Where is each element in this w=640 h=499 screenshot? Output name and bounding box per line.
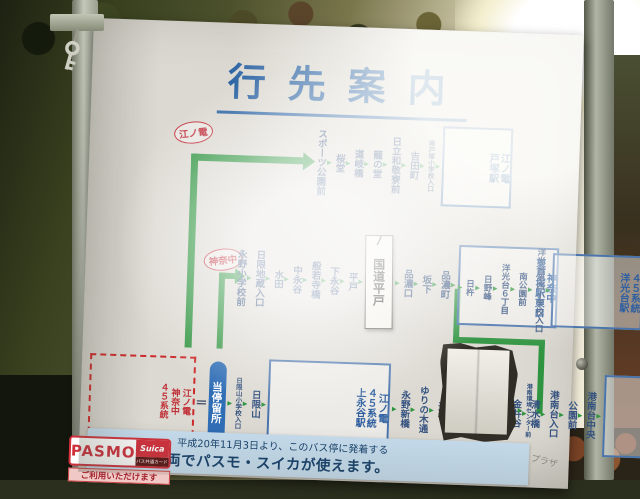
route-arrow-icon: ▶ xyxy=(392,405,397,412)
suica-badge: Suica バス共通カード xyxy=(135,440,169,467)
route-line-vertical-middle xyxy=(217,273,226,349)
route-arrow-icon: ▶ xyxy=(493,285,498,292)
bus-stop-label: ゆりの木通 xyxy=(416,386,428,434)
route-arrow-icon: ▶ xyxy=(432,280,437,287)
bus-stop-label: 平戸 xyxy=(346,271,357,290)
route-arrow-icon: ▶ xyxy=(247,274,252,281)
pasted-stop-label: 国道平戸 xyxy=(365,235,394,329)
terminal-box-totsuka: 江ノ電戸塚駅 xyxy=(441,126,514,208)
route-arrow-icon: ▶ xyxy=(475,284,480,291)
route-arrow-icon: ▶ xyxy=(265,275,270,282)
bus-stop-label: 南戸塚小学校入口 xyxy=(426,140,435,192)
pole-bolt xyxy=(576,358,588,370)
route-line-top-horizontal xyxy=(191,153,303,164)
pasmo-strip-text: ご利用いただけます xyxy=(68,467,170,485)
bus-stop-label: 下永谷 xyxy=(327,266,338,295)
bus-stop-label: 品濃口 xyxy=(401,269,412,298)
bus-stop-label: 水田 xyxy=(272,269,283,288)
bus-stop-label: 日立和敬寮前 xyxy=(388,136,400,193)
route-arrow-icon: ▶ xyxy=(458,283,463,290)
route-arrow-icon: ▶ xyxy=(541,410,546,417)
route-arrow-icon: ▶ xyxy=(435,163,440,170)
equals-sign: ＝ xyxy=(195,393,208,410)
route-arrowhead-top xyxy=(303,152,316,170)
terminal-label: ４５系統 xyxy=(157,382,167,418)
terminal-label: ４５系統 xyxy=(628,273,640,313)
route-arrow-icon: ▶ xyxy=(243,400,248,407)
route-arrow-icon: ▶ xyxy=(528,286,533,293)
bus-stop-label: 港南台入口 xyxy=(546,390,558,438)
terminal-box-konandai: ４５系統港南台駅 xyxy=(602,375,640,460)
route-arrow-icon: ▶ xyxy=(429,406,434,413)
pasmo-logo-box: PASMO Suica バス共通カード xyxy=(68,435,171,469)
suica-sub-label: バス共通カード xyxy=(135,457,169,467)
terminal-label: 戸塚駅 xyxy=(486,153,497,183)
route-arrow-icon: ▶ xyxy=(451,281,456,288)
bus-stop-label: 日限山 xyxy=(249,389,260,418)
terminal-label: ４５系統 xyxy=(364,388,376,428)
bus-stop-label: 公園前 xyxy=(565,400,576,429)
bus-stop-label: 永野小学校前 xyxy=(234,249,246,306)
bus-stop-label: 洋光台第四小学校入口 xyxy=(533,247,545,332)
route-arrow-icon: ▶ xyxy=(284,275,289,282)
terminal-label: 江ノ電 xyxy=(375,393,386,423)
route-line-middle-horizontal xyxy=(219,273,235,280)
route-arrow-icon: ▶ xyxy=(227,399,232,406)
route-arrow-icon: ▶ xyxy=(578,412,583,419)
route-arrow-icon: ▶ xyxy=(340,277,345,284)
bus-stop-label: 日限地蔵入口 xyxy=(253,249,265,306)
bus-stop-label: 桜堂 xyxy=(333,153,344,172)
route-arrow-icon: ▶ xyxy=(414,280,419,287)
route-arrow-icon: ▶ xyxy=(346,159,351,166)
terminal-label: 上永谷駅 xyxy=(353,387,365,427)
destination-sign-board: 行先案内 江ノ電 神奈中 スポーツ公園前▶桜堂▶道岐橋▶龍の堂▶日立和敬寮前▶吉… xyxy=(78,18,584,489)
torn-paper-surface xyxy=(445,349,510,435)
sign-title: 行先案内 xyxy=(217,50,469,122)
terminal-label: 江ノ電 xyxy=(180,388,190,415)
route-arrow-icon: ▶ xyxy=(321,277,326,284)
bus-stop-label: スポーツ公園前 xyxy=(314,129,326,196)
bus-stop-label: 日杵 xyxy=(464,279,474,296)
bus-stop-label: 洋光台６丁目 xyxy=(499,263,510,314)
terminal-box-yokodai: ４５系統洋光台駅 xyxy=(551,253,640,330)
route-arrow-icon: ▶ xyxy=(545,286,550,293)
terminal-label: 江ノ電 xyxy=(497,153,508,183)
bus-stop-label: 道岐橋 xyxy=(352,149,363,178)
route-arrow-icon: ▶ xyxy=(596,412,601,419)
bus-stop-label: 品濃町 xyxy=(438,270,449,299)
route-arrow-icon: ▶ xyxy=(364,160,369,167)
route-45-yokodai-branch: ▶日杵▶日野峰▶洋光台６丁目▶南公園前▶洋光台第四小学校入口▶ ４５系統洋光台駅 xyxy=(455,241,640,339)
bus-stop-label: 吉田町 xyxy=(408,151,419,180)
terminal-label: 神奈中 xyxy=(169,387,179,414)
torn-paper-patch xyxy=(437,342,518,443)
pasted-stop-label-text: 国道平戸 xyxy=(370,258,387,306)
bus-stop-label: 坂下 xyxy=(420,274,431,293)
route-arrow-icon: ▶ xyxy=(559,411,564,418)
route-arrow-icon: ▶ xyxy=(358,278,363,285)
bus-stop-label: 日野峰 xyxy=(482,275,492,301)
bus-stop-label: 龍の堂 xyxy=(370,150,381,179)
bus-stop-label: 港南台中央 xyxy=(584,392,596,440)
route-arrow-icon: ▶ xyxy=(327,159,332,166)
route-arrow-icon: ▶ xyxy=(510,285,515,292)
route-arrow-icon: ▶ xyxy=(420,162,425,169)
route-arrow-icon: ▶ xyxy=(261,401,266,408)
route-arrow-icon: ▶ xyxy=(401,161,406,168)
pasmo-logo: PASMO xyxy=(71,441,136,461)
route-arrow-icon: ▶ xyxy=(395,279,400,286)
bus-stop-label: 日限山小学校入口 xyxy=(233,377,242,429)
route-enoden-totsuka: スポーツ公園前▶桜堂▶道岐橋▶龍の堂▶日立和敬寮前▶吉田町▶南戸塚小学校入口▶ … xyxy=(313,114,513,217)
bus-stop-label: 南公園前 xyxy=(516,272,526,306)
bus-stop-label: 永野新橋 xyxy=(398,390,409,428)
route-arrow-icon: ▶ xyxy=(517,407,522,414)
route-line-vertical-left xyxy=(185,153,199,347)
branch-connector-horizontal xyxy=(453,337,545,346)
foliage-bottom-left xyxy=(0,375,78,480)
route-arrow-icon: ▶ xyxy=(410,406,415,413)
this-stop-label: 当停留所 xyxy=(209,381,225,423)
terminal-label: 洋光台駅 xyxy=(617,272,629,312)
bus-stop-label: 般若寺橋 xyxy=(309,261,320,299)
bus-stop-label: 中永谷 xyxy=(290,265,301,294)
operator-badge-enoden: 江ノ電 xyxy=(173,120,214,146)
bus-stop-label: 港南環境センター前 xyxy=(523,383,531,437)
suica-logo: Suica xyxy=(135,440,169,458)
route-arrow-icon: ▶ xyxy=(303,276,308,283)
route-arrow-icon: ▶ xyxy=(383,161,388,168)
